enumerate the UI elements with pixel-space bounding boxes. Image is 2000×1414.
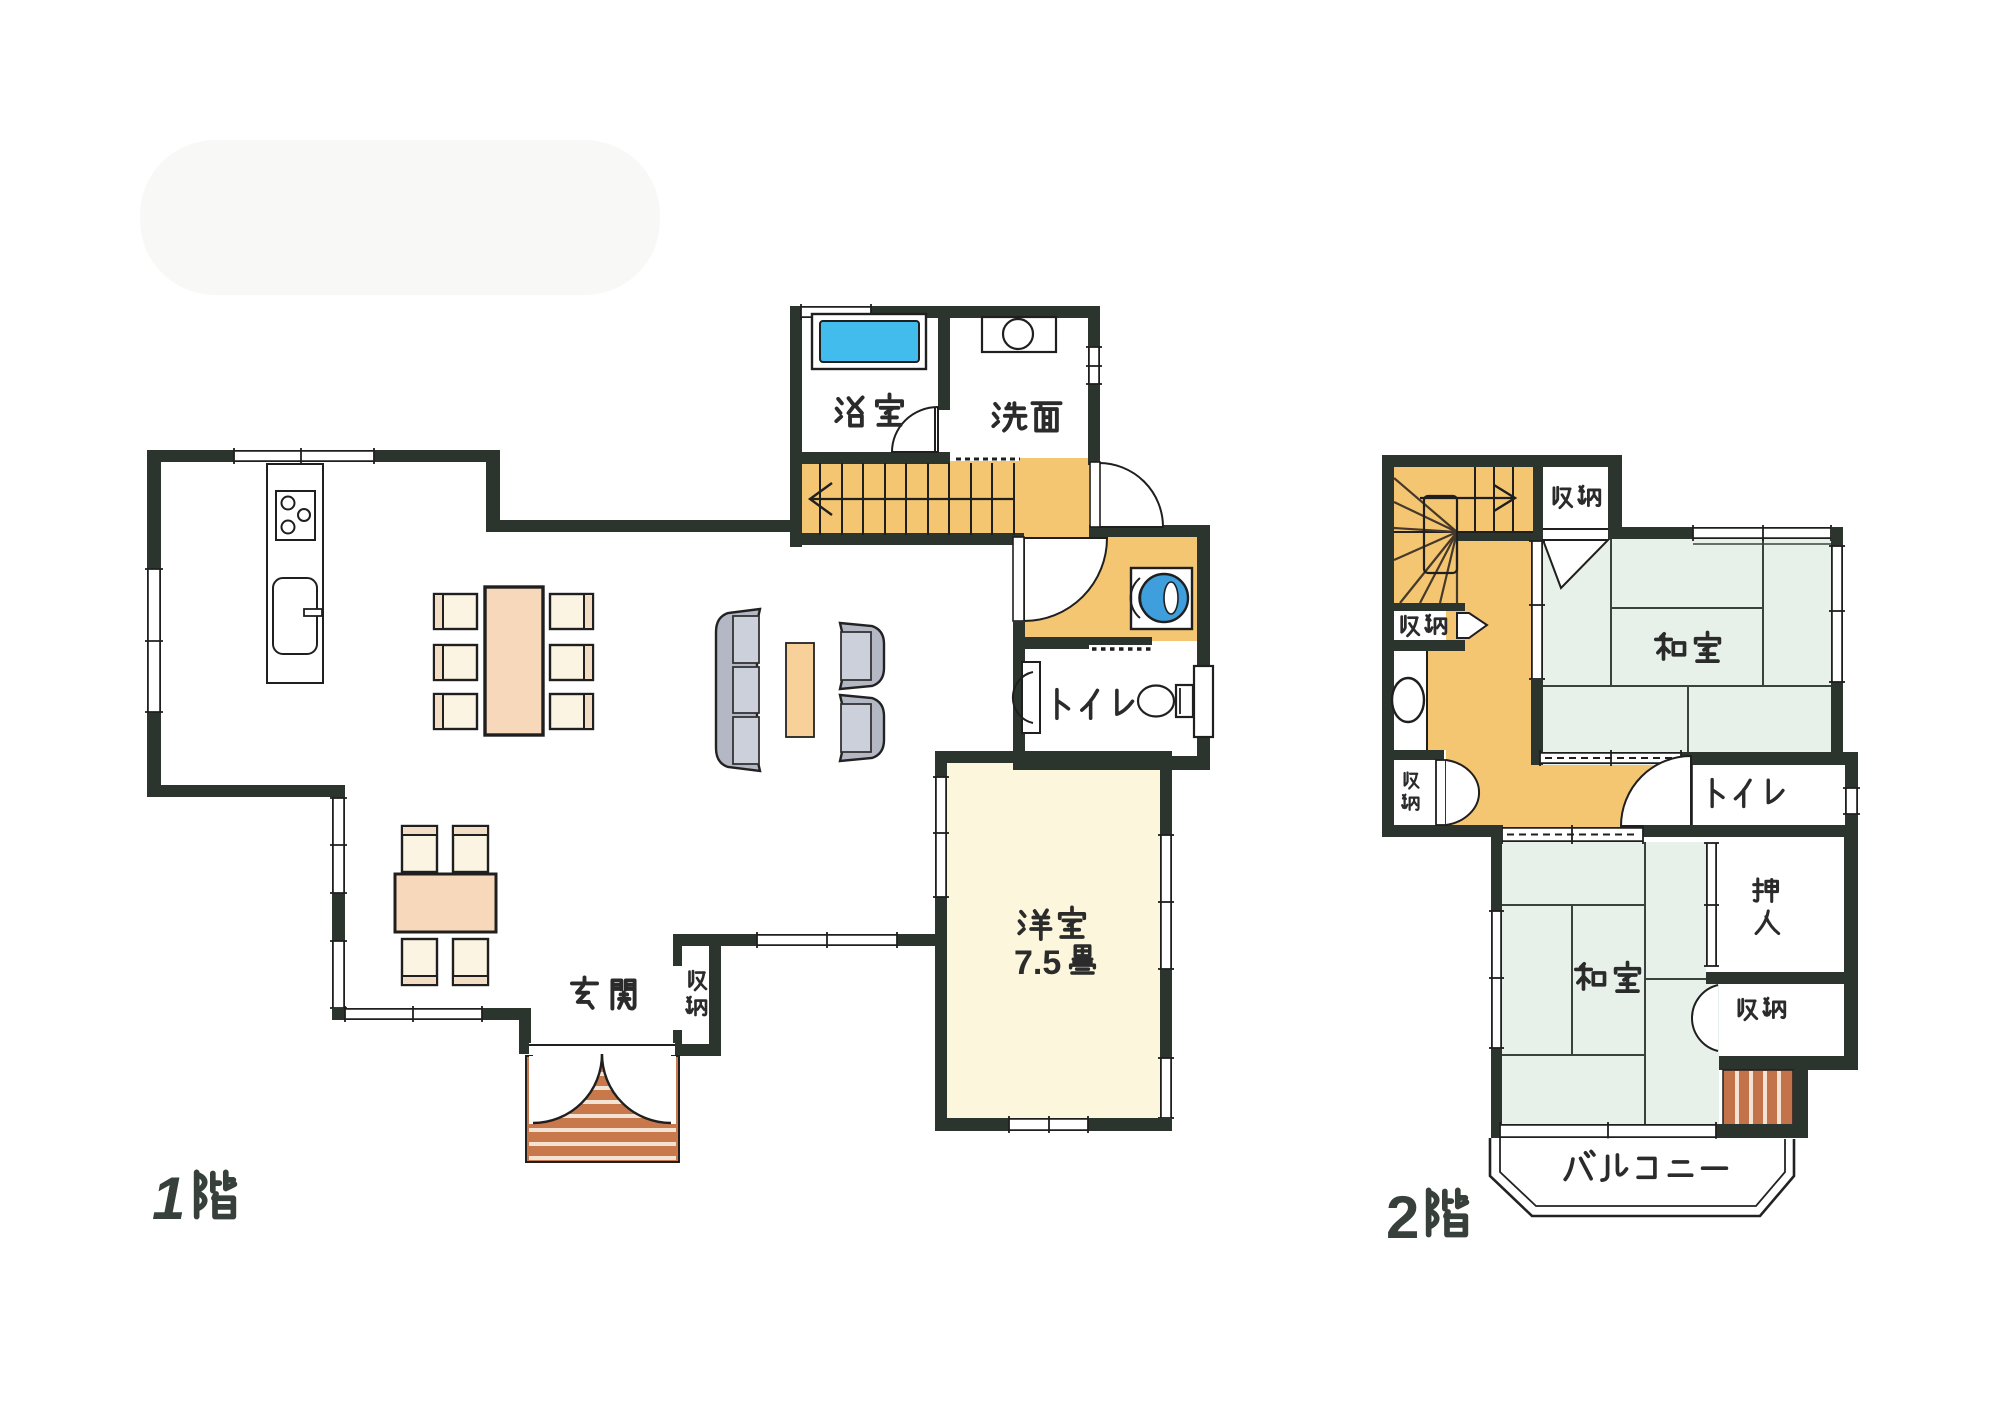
svg-text:7.5: 7.5 <box>1014 944 1061 982</box>
svg-text:2: 2 <box>1386 1184 1419 1251</box>
svg-text:1: 1 <box>152 1165 185 1232</box>
